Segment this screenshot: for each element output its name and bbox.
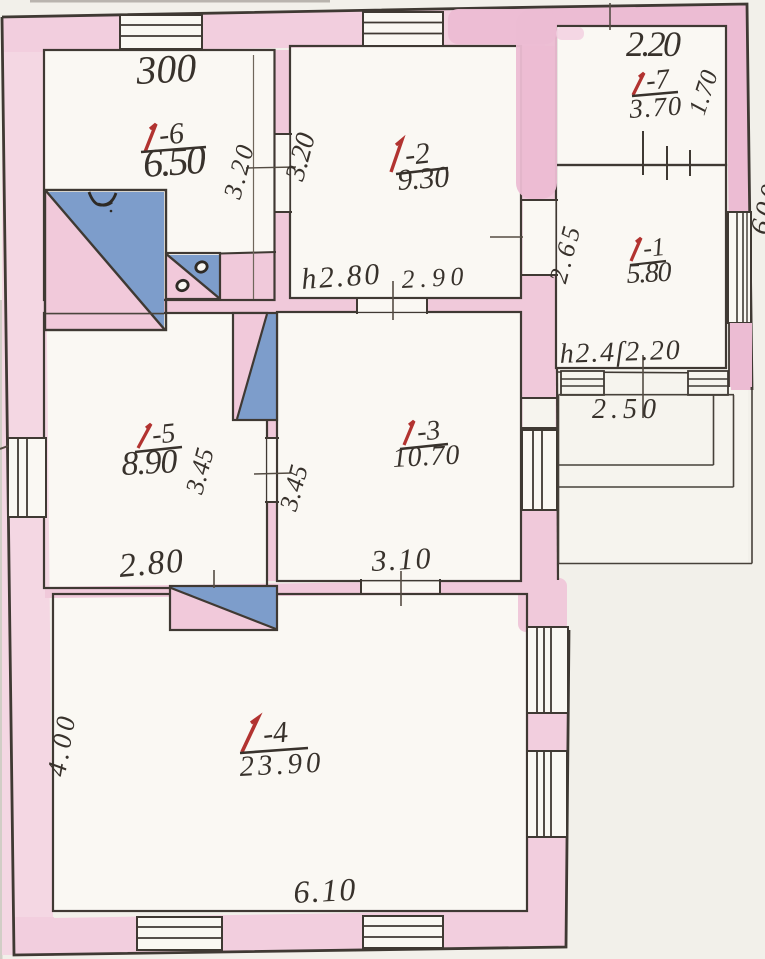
svg-text:2.20: 2.20 [626,24,681,64]
svg-text:6.10: 6.10 [292,871,356,910]
svg-text:10.70: 10.70 [392,440,461,474]
svg-text:h2.80: h2.80 [300,258,380,296]
svg-text:9.30: 9.30 [396,160,450,197]
svg-text:h2.4ſ2.20: h2.4ſ2.20 [559,335,680,370]
svg-text:23.90: 23.90 [239,747,322,783]
svg-text:300: 300 [134,45,197,93]
svg-text:6.50: 6.50 [141,137,207,186]
svg-text:2.90: 2.90 [401,262,464,294]
svg-text:3.10: 3.10 [370,542,432,578]
svg-text:5.80: 5.80 [626,257,673,290]
svg-text:3.70: 3.70 [627,90,682,124]
svg-text:2.80: 2.80 [117,543,184,585]
svg-text:8.90: 8.90 [120,443,178,483]
svg-text:-4: -4 [261,716,289,751]
svg-text:2.50: 2.50 [592,394,656,425]
